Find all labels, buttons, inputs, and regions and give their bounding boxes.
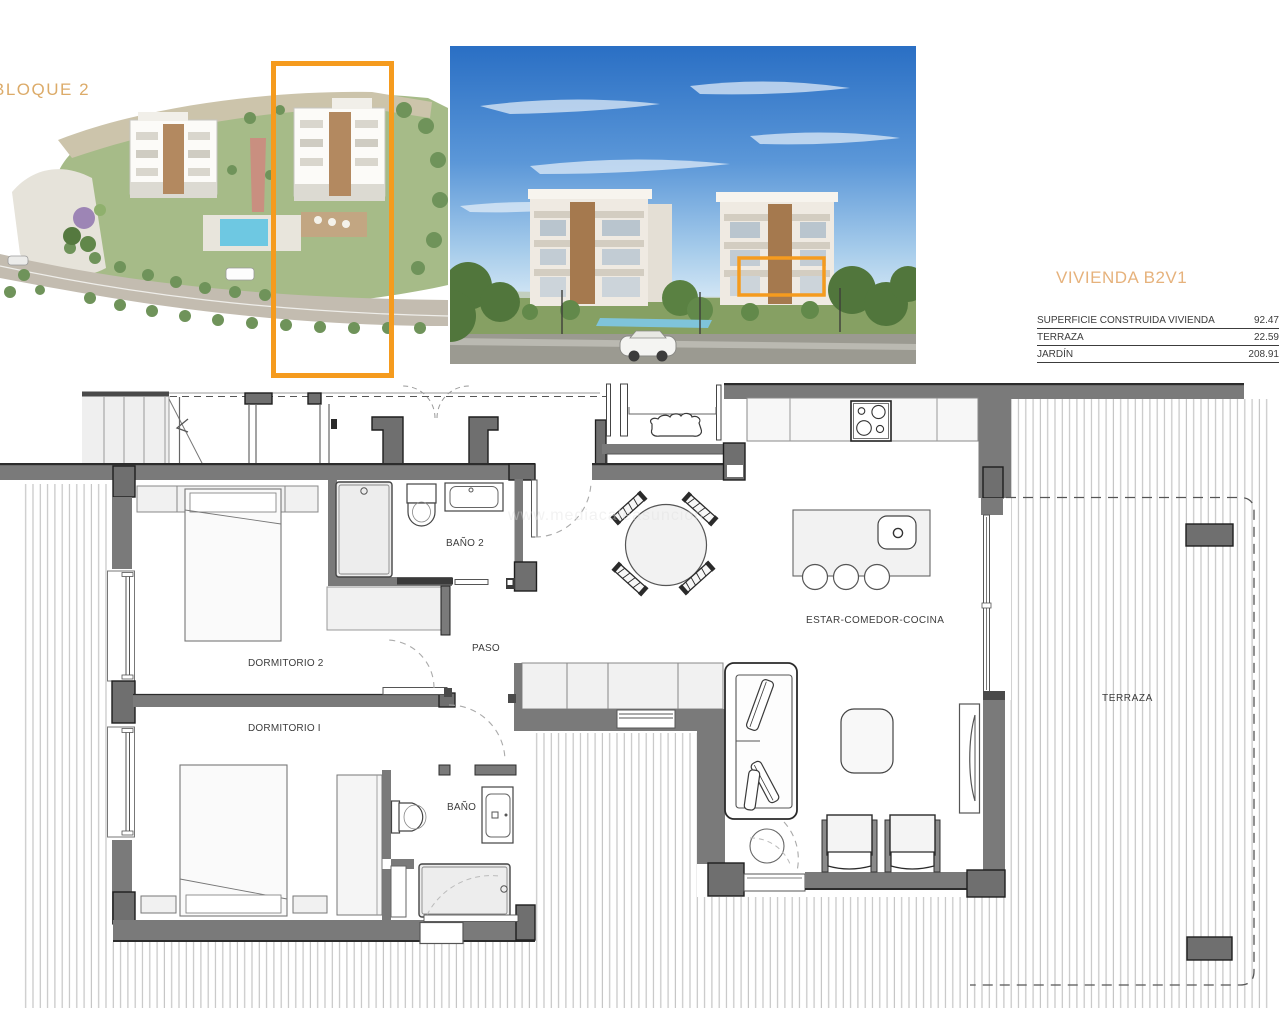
svg-text:BAÑO 2: BAÑO 2	[446, 536, 484, 549]
svg-text:PASO: PASO	[472, 643, 500, 654]
svg-text:TERRAZA: TERRAZA	[1102, 693, 1153, 704]
svg-text:www.mediacaleasuncion: www.mediacaleasuncion	[507, 507, 704, 524]
svg-text:DORMITORIO I: DORMITORIO I	[248, 723, 321, 734]
svg-text:ESTAR-COMEDOR-COCINA: ESTAR-COMEDOR-COCINA	[806, 615, 944, 626]
svg-text:DORMITORIO 2: DORMITORIO 2	[248, 658, 324, 669]
svg-text:BAÑO: BAÑO	[447, 800, 476, 813]
